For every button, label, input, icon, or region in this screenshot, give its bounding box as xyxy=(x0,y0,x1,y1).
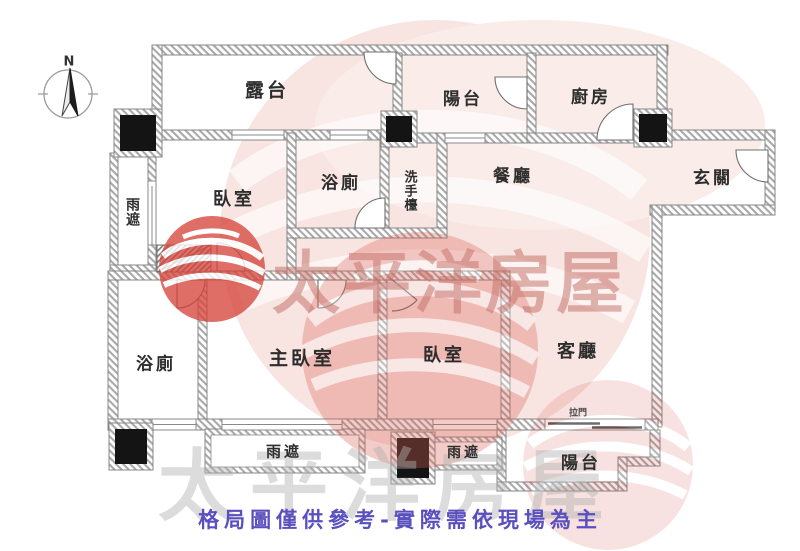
room-label-master-bedroom: 主臥室 xyxy=(269,344,335,371)
column xyxy=(634,109,672,147)
north-arrow-dark xyxy=(70,68,78,116)
room-label-rain-cover-bottom-right: 雨遮 xyxy=(447,442,481,462)
room-label-balcony-top: 陽台 xyxy=(443,85,483,110)
room-label-kitchen: 廚房 xyxy=(571,83,611,108)
room-label-bedroom-top: 臥室 xyxy=(213,185,255,211)
sliding-door-label: 拉門 xyxy=(569,406,587,419)
floorplan-graphic xyxy=(0,0,800,551)
floorplan-page: 太平洋房屋 太平洋房屋 露台 陽台 廚房 玄關 餐廳 洗手檯 浴廁 臥室 雨遮 … xyxy=(0,0,800,551)
room-label-rain-cover-bottom-left: 雨遮 xyxy=(266,441,302,462)
room-label-foyer: 玄關 xyxy=(693,164,733,189)
room-label-bedroom-bottom: 臥室 xyxy=(423,341,465,367)
column xyxy=(114,109,162,157)
room-label-terrace: 露台 xyxy=(245,76,289,103)
brand-emblem-large xyxy=(302,232,538,468)
brand-emblem-small xyxy=(159,216,265,322)
room-label-dining: 餐廳 xyxy=(493,162,533,187)
room-label-bathroom-top: 浴廁 xyxy=(321,169,361,194)
room-label-rain-cover-left: 雨遮 xyxy=(122,197,142,227)
room-label-bathroom-bottom: 浴廁 xyxy=(136,350,176,375)
column xyxy=(381,111,417,147)
room-label-living-room: 客廳 xyxy=(557,337,599,363)
compass-north-label: N xyxy=(64,55,75,70)
footer-disclaimer: 格局圖僅供參考-實際需依現場為主 xyxy=(198,504,602,534)
door-entrance xyxy=(736,150,768,182)
column xyxy=(109,423,153,470)
room-label-washbasin: 洗手檯 xyxy=(400,170,419,212)
compass xyxy=(38,68,98,118)
room-label-balcony-bottom: 陽台 xyxy=(561,449,601,474)
north-arrow xyxy=(62,68,70,116)
